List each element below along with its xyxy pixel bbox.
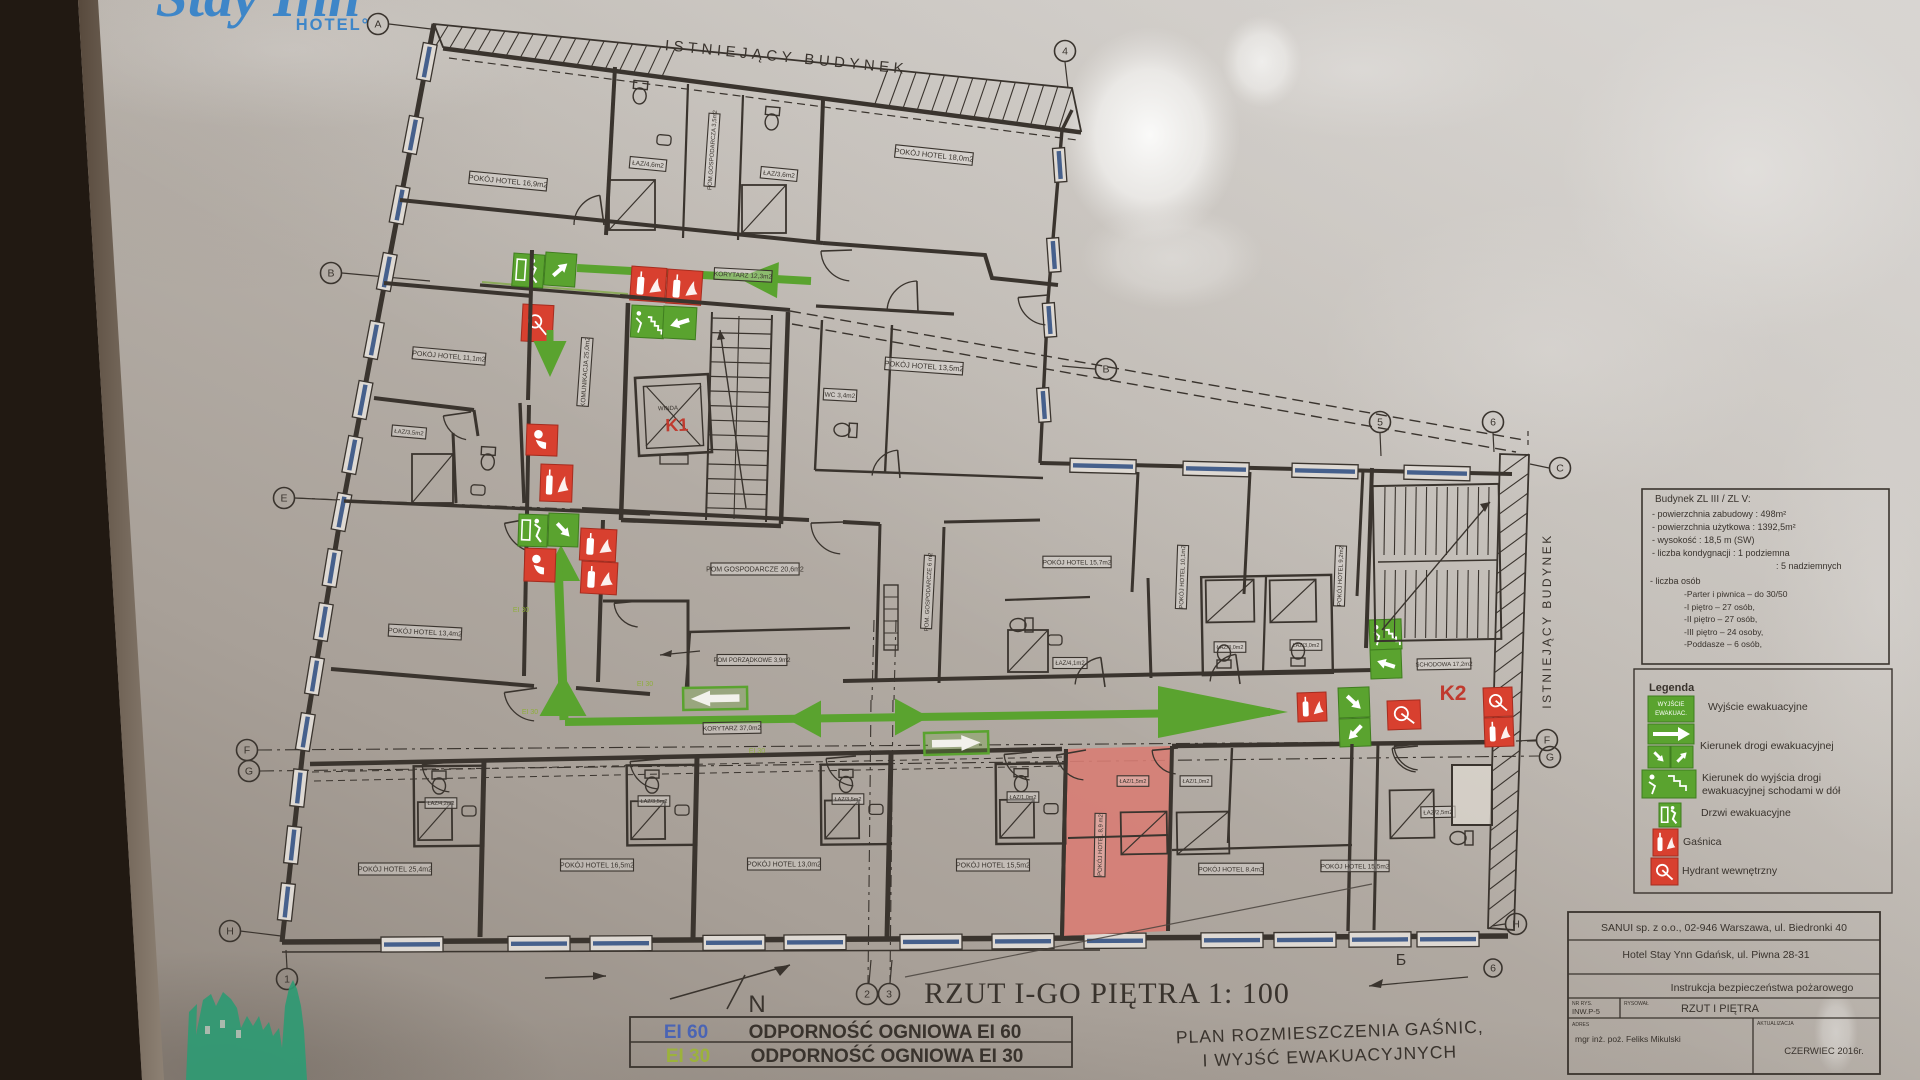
svg-text:Legenda: Legenda (1649, 682, 1695, 694)
svg-text:ODPORNOŚĆ OGNIOWA EI 60: ODPORNOŚĆ OGNIOWA EI 60 (749, 1021, 1022, 1043)
svg-text:WINDA: WINDA (658, 406, 678, 413)
svg-text:4: 4 (1062, 46, 1068, 58)
svg-text:SANUI sp. z o.o., 02-946 Warsz: SANUI sp. z o.o., 02-946 Warszawa, ul. B… (1601, 922, 1847, 934)
svg-text:F: F (1544, 735, 1550, 747)
svg-text:ISTNIEJĄCY BUDYNEK: ISTNIEJĄCY BUDYNEK (1540, 533, 1554, 708)
svg-text:G: G (1546, 752, 1554, 764)
svg-text:5: 5 (1377, 417, 1383, 429)
svg-text:POM PORZĄDKOWE 3,9m2: POM PORZĄDKOWE 3,9m2 (713, 658, 791, 664)
svg-text:Budynek ZL III / ZL V:: Budynek ZL III / ZL V: (1655, 494, 1751, 505)
svg-text:Hydrant wewnętrzny: Hydrant wewnętrzny (1682, 865, 1778, 877)
svg-text:Hotel Stay Ynn Gdańsk, ul. Pi: Hotel Stay Ynn Gdańsk, ul. Piwna 28-31 (1622, 949, 1809, 961)
svg-text:ŁAZ/2,5m2: ŁAZ/2,5m2 (1423, 810, 1453, 817)
svg-text:-Poddasze – 6 osób,: -Poddasze – 6 osób, (1684, 639, 1762, 649)
svg-text:K2: K2 (1440, 682, 1467, 705)
svg-text:H: H (226, 926, 234, 938)
svg-text:ŁAZ/3,5m2: ŁAZ/3,5m2 (641, 799, 668, 805)
svg-text:POKÓJ HOTEL 15,5m2: POKÓJ HOTEL 15,5m2 (956, 861, 1030, 870)
svg-text:ŁAZ/1,0m2: ŁAZ/1,0m2 (1010, 795, 1037, 801)
svg-text:- liczba osób: - liczba osób (1650, 576, 1701, 586)
svg-text:A: A (374, 19, 381, 31)
svg-text:1: 1 (284, 974, 290, 986)
svg-text:6: 6 (1490, 963, 1496, 975)
svg-text:INW.P-5: INW.P-5 (1572, 1007, 1600, 1016)
svg-text:POKÓJ HOTEL 15,7m2: POKÓJ HOTEL 15,7m2 (1043, 557, 1112, 566)
svg-text:EWAKUAC.: EWAKUAC. (1655, 711, 1687, 717)
svg-text:RZUT I PIĘTRA: RZUT I PIĘTRA (1681, 1003, 1760, 1015)
svg-text:POKÓJ HOTEL 16,5m2: POKÓJ HOTEL 16,5m2 (560, 861, 634, 870)
svg-text:- powierzchnia użytkowa : 139: - powierzchnia użytkowa : 1392,5m² (1652, 522, 1796, 532)
svg-text:WYJŚCIE: WYJŚCIE (1658, 700, 1685, 708)
svg-text:POKÓJ HOTEL 8,9 m2: POKÓJ HOTEL 8,9 m2 (1097, 813, 1105, 876)
svg-text:ODPORNOŚĆ OGNIOWA EI 30: ODPORNOŚĆ OGNIOWA EI 30 (751, 1045, 1024, 1067)
svg-text:RYSOWAŁ: RYSOWAŁ (1624, 1001, 1649, 1007)
svg-text:-Parter i piwnica – do 30/50: -Parter i piwnica – do 30/50 (1684, 589, 1788, 599)
svg-text:E: E (280, 493, 287, 505)
svg-text:-II piętro – 27 osób,: -II piętro – 27 osób, (1684, 614, 1757, 624)
svg-text:- liczba kondygnacji :: - liczba kondygnacji : 1 podziemna (1652, 548, 1790, 558)
svg-text:ADRES: ADRES (1572, 1022, 1590, 1028)
svg-text:HOTEL°: HOTEL° (296, 16, 371, 34)
svg-text:ŁAZ/3,5m2: ŁAZ/3,5m2 (835, 797, 862, 803)
svg-text:POKÓJ HOTEL 25,4m2: POKÓJ HOTEL 25,4m2 (358, 865, 432, 874)
svg-text:K1: K1 (665, 415, 689, 436)
svg-text:ŁAZ/4,1m2: ŁAZ/4,1m2 (1055, 661, 1085, 667)
svg-text:6: 6 (1490, 417, 1496, 429)
svg-text:ŁAZ/1,0m2: ŁAZ/1,0m2 (1183, 779, 1210, 785)
svg-text:ŁAZ/4,2m2: ŁAZ/4,2m2 (428, 801, 455, 807)
svg-text:Б: Б (1396, 952, 1407, 969)
svg-text:EI 30: EI 30 (513, 607, 529, 614)
svg-text:G: G (245, 766, 253, 778)
svg-text:N: N (748, 991, 765, 1018)
svg-text:POKÓJ HOTEL 15,5m2: POKÓJ HOTEL 15,5m2 (1321, 861, 1390, 870)
svg-text:F: F (244, 745, 250, 757)
svg-text:CZERWIEC 2016r.: CZERWIEC 2016r. (1784, 1046, 1864, 1057)
svg-text:ewakuacyjnej schodami w dół: ewakuacyjnej schodami w dół (1702, 785, 1841, 797)
svg-text:SCHODOWA 17,2m2: SCHODOWA 17,2m2 (1415, 662, 1473, 669)
svg-text:2: 2 (864, 989, 870, 1001)
svg-text:POKÓJ HOTEL 8,4m2: POKÓJ HOTEL 8,4m2 (1198, 864, 1264, 873)
svg-text:B: B (1102, 364, 1109, 376)
svg-text:: 5 nadziemnych: : 5 nadziemnych (1776, 561, 1842, 571)
svg-text:KORYTARZ 37,0m2: KORYTARZ 37,0m2 (703, 725, 762, 733)
svg-text:POKÓJ HOTEL 13,0m2: POKÓJ HOTEL 13,0m2 (747, 860, 821, 869)
svg-text:- powierzchnia zabudowy : 498m: - powierzchnia zabudowy : 498m² (1652, 509, 1786, 519)
svg-text:-I piętro – 27 osób,: -I piętro – 27 osób, (1684, 602, 1755, 612)
svg-text:EI 30: EI 30 (637, 681, 653, 688)
svg-text:ŁAZ/1,5m2: ŁAZ/1,5m2 (1120, 779, 1147, 785)
svg-text:Instrukcja bezpieczeństwa poża: Instrukcja bezpieczeństwa pożarowego (1671, 982, 1854, 994)
svg-text:Drzwi ewakuacyjne: Drzwi ewakuacyjne (1701, 807, 1791, 819)
svg-text:C: C (1556, 463, 1564, 475)
svg-text:Kierunek do wyjścia drogi: Kierunek do wyjścia drogi (1702, 772, 1821, 784)
svg-text:- wysokość :: - wysokość : 18,5 m (SW) (1652, 535, 1755, 545)
svg-text:Wyjście ewakuacyjne: Wyjście ewakuacyjne (1708, 701, 1808, 713)
svg-text:POM GOSPODARCZE 20,6m2: POM GOSPODARCZE 20,6m2 (706, 567, 804, 574)
svg-text:EI 30: EI 30 (522, 709, 538, 716)
svg-text:Kierunek drogi ewakuacyjnej: Kierunek drogi ewakuacyjnej (1700, 740, 1834, 752)
svg-text:EI 60: EI 60 (664, 1022, 708, 1043)
svg-text:3: 3 (886, 989, 892, 1001)
svg-text:RZUT I-GO PIĘTRA 1: 100: RZUT I-GO PIĘTRA 1: 100 (924, 977, 1290, 1010)
svg-text:-III piętro – 24 osoby,: -III piętro – 24 osoby, (1684, 627, 1763, 637)
svg-text:Gaśnica: Gaśnica (1683, 836, 1722, 848)
svg-text:EI 30: EI 30 (666, 1046, 710, 1067)
svg-text:EI 30: EI 30 (749, 748, 766, 755)
svg-text:mgr inż. poż. Feliks Mikulski: mgr inż. poż. Feliks Mikulski (1575, 1034, 1681, 1044)
svg-text:B: B (327, 268, 334, 280)
svg-text:AKTUALIZACJA: AKTUALIZACJA (1757, 1021, 1794, 1027)
